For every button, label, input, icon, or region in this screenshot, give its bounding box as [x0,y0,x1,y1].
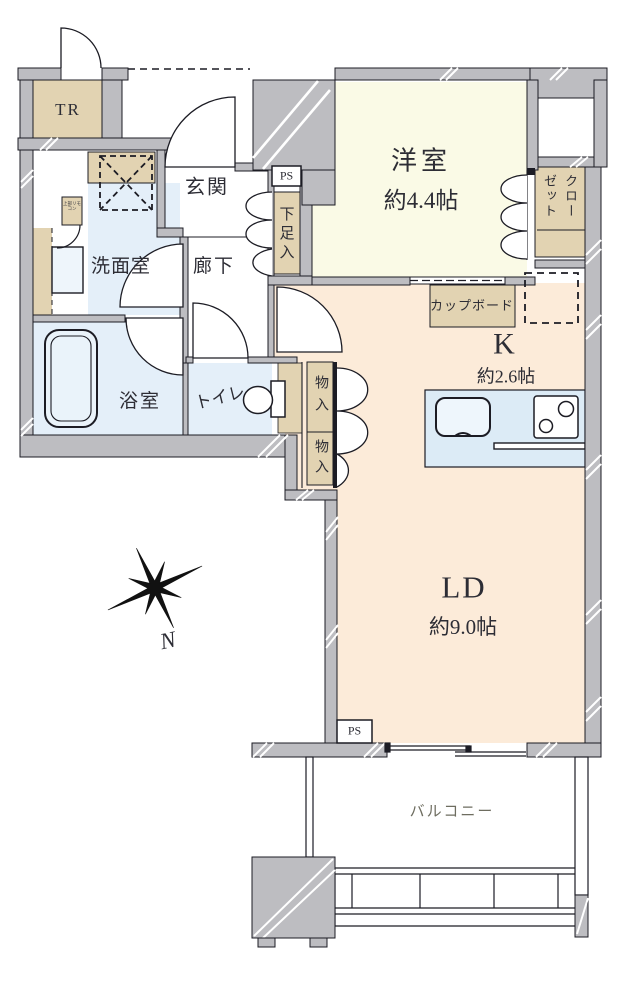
kitchen-label: K [493,328,515,360]
washroom-label: 洗面室 [91,257,151,277]
water-heater-note: 上部リモコン [63,201,81,211]
shoe-cabinet-label: 下足入 [272,196,300,272]
burner-icon [540,420,553,433]
western-room-size: 約4.4帖 [384,189,459,213]
hallway-label: 廊下 [193,257,235,277]
toilet-icon [244,387,273,414]
western-room-floor [312,82,527,277]
living-dining-size: 約9.0帖 [429,616,497,638]
stove-icon [534,396,578,438]
storage-upper-label: 物入 [307,366,333,428]
floorplan-drawing [0,0,627,984]
balcony-railing [313,868,575,926]
balcony-right-wall [575,757,588,895]
ps-top-label: PS [280,170,293,183]
kitchen-size: 約2.6帖 [477,368,536,387]
corner-column [253,80,335,170]
washroom-side-panel [33,228,52,318]
closet-label: クローゼット [538,174,582,224]
kitchen-counter [425,390,585,467]
western-room-label: 洋室 [391,147,451,174]
cupboard-label: カップボード [430,299,514,313]
entrance-label: 玄関 [185,178,229,199]
bathtub-icon [45,330,97,427]
living-dining-label: LD [441,572,486,605]
ps-bottom-label: PS [348,725,361,738]
vanity-icon [52,247,83,293]
balcony-label: バルコニー [410,805,495,821]
trunk-room-label: TR [55,101,81,119]
shoe-cabinet-folding-door [246,192,272,276]
balcony-structure [252,757,588,947]
bathroom-label: 浴室 [119,392,161,412]
compass-icon [108,548,202,628]
balcony-left-wall [306,757,313,857]
storage-lower-label: 物入 [307,434,333,484]
storage-jamb [333,362,337,488]
balcony-window-icon [385,743,526,756]
sink-icon [436,398,490,436]
closet-folding-doors [501,175,527,259]
trunk-room-door [61,28,101,68]
counter-edge [494,443,585,449]
toilet-door [193,303,248,358]
entrance-door [165,97,235,167]
floorplan-canvas: TR 玄関 PS 下足入 洋室 約4.4帖 クローゼット カップボード K 約2… [0,0,627,984]
burner-icon [559,402,574,417]
